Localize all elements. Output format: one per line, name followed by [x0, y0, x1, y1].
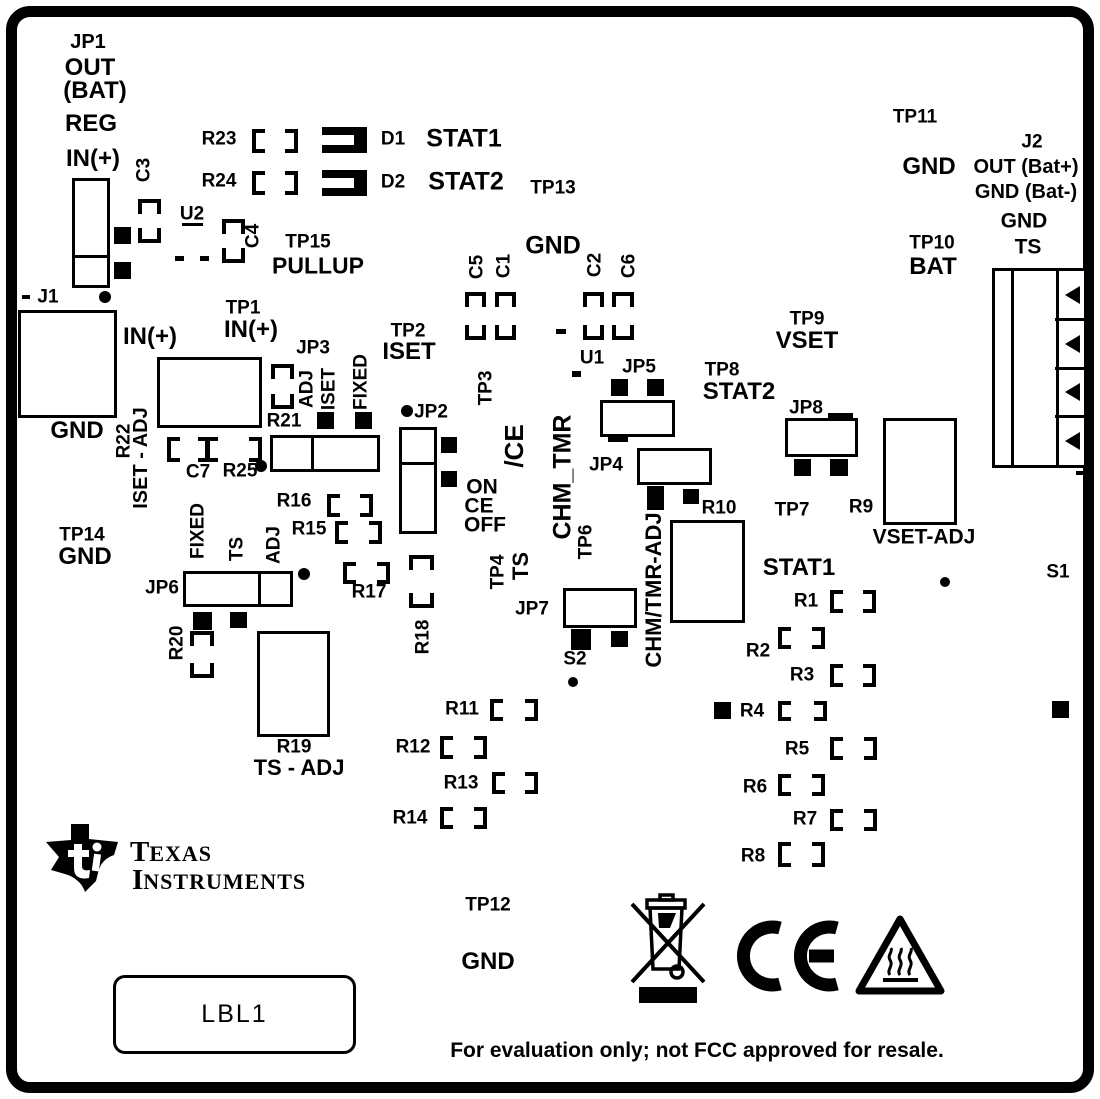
r23-pads-bracket-left: [252, 129, 265, 153]
ti-logo-icon: [44, 822, 120, 894]
j2-cell-divider: [1055, 415, 1085, 418]
r24-pads: [252, 171, 298, 195]
j2-pin-arrow-icon: [1065, 432, 1080, 450]
label-tp1: TP1: [226, 299, 261, 318]
r17-pads: [343, 562, 390, 584]
j2-strip-line: [1011, 270, 1014, 466]
r2-pads-bracket-left: [778, 627, 791, 649]
jp7: [563, 588, 637, 628]
label-jp8: JP8: [789, 399, 823, 418]
hot-surface-icon: [854, 912, 946, 998]
c3-pads-bracket-top: [138, 199, 161, 214]
r12-pads: [440, 736, 487, 759]
j2-pin-arrow-icon: [1065, 286, 1080, 304]
label-r6: R6: [743, 778, 767, 797]
label-tp10: TP10: [909, 234, 954, 253]
r15-pads-bracket-right: [369, 521, 382, 544]
c2-pads: [583, 292, 604, 340]
r11-pads: [490, 699, 538, 721]
label-jp5: JP5: [622, 358, 656, 377]
jp5: [600, 400, 675, 437]
c4-pads-bracket-bottom: [222, 248, 245, 263]
label-j2: J2: [1021, 133, 1042, 152]
r18-pads-bracket-bottom: [409, 593, 434, 608]
c5-pads-bracket-top: [465, 292, 486, 307]
r14-pads-bracket-right: [474, 807, 487, 829]
label-u2: U2: [180, 205, 204, 224]
jp1-pad: [114, 262, 131, 279]
label-tp3: TP3: [477, 371, 496, 406]
label-r1: R1: [794, 592, 818, 611]
label-d1: D1: [381, 130, 405, 149]
label-r25: R25: [223, 462, 258, 481]
silk-mark: [608, 437, 628, 442]
c7-pads: [167, 437, 262, 462]
r1-pads: [830, 590, 876, 613]
label-tp4: TP4: [489, 555, 508, 590]
r1-pads-bracket-left: [830, 590, 843, 613]
label-r9: R9: [849, 498, 873, 517]
label-stat1: STAT1: [763, 556, 835, 580]
label-r11: R11: [445, 700, 479, 719]
r15-pads-bracket-left: [335, 521, 348, 544]
j2-cell-divider: [1055, 367, 1085, 370]
silk-mark: [572, 371, 581, 377]
jp3-pad: [355, 412, 372, 429]
r16-pads: [327, 494, 373, 517]
label-gnd: GND: [50, 419, 103, 443]
r21-pads-bracket-top: [271, 364, 294, 379]
label-c2: C2: [586, 253, 605, 277]
label-ts: TS: [1015, 237, 1042, 258]
jp2-jumper-divider: [401, 462, 435, 465]
r16-pads-bracket-left: [327, 494, 340, 517]
c7-bracket-left: [167, 437, 180, 462]
r8-pads-bracket-right: [812, 842, 825, 867]
d1-led: [322, 127, 367, 153]
label-gnd: GND: [525, 234, 581, 259]
label-r21: R21: [267, 412, 302, 431]
c1-pads-bracket-bottom: [495, 325, 516, 340]
label-d2: D2: [381, 173, 405, 192]
jp5-pad: [647, 379, 664, 396]
r20-pads-bracket-top: [190, 631, 214, 646]
label-r13: R13: [444, 774, 479, 793]
label-tp15: TP15: [285, 233, 330, 252]
r4-pads: [778, 701, 827, 721]
jp1-jumper-divider: [74, 255, 108, 258]
r6-pads-bracket-right: [812, 774, 825, 796]
brand-texas: TEXAS: [130, 838, 212, 867]
c2-pads-bracket-bottom: [583, 325, 604, 340]
r2-pads-bracket-right: [812, 627, 825, 649]
label-c7: C7: [186, 463, 210, 482]
r24-pads-bracket-left: [252, 171, 265, 195]
label-r8: R8: [741, 847, 765, 866]
silk-mark: [1076, 471, 1087, 475]
c5-pads: [465, 292, 486, 340]
weee-icon: [630, 892, 708, 1004]
r15-pads: [335, 521, 382, 544]
r17-pads-bracket-right: [377, 562, 390, 584]
label-r14: R14: [393, 809, 428, 828]
silk-mark: [200, 256, 209, 261]
r23-pads-bracket-right: [285, 129, 298, 153]
r5-pads-bracket-left: [830, 737, 843, 760]
j2-connector: [992, 268, 1087, 468]
label-vset-adj: VSET-ADJ: [873, 527, 976, 548]
r23-pads: [252, 129, 298, 153]
c4-pads: [222, 219, 245, 263]
label-bat: BAT: [909, 255, 957, 279]
jp5-pad: [611, 379, 628, 396]
r12-pads-bracket-left: [440, 736, 453, 759]
label-stat2: STAT2: [703, 380, 775, 404]
label-gnd: GND: [461, 950, 514, 974]
jp4-pad: [683, 489, 699, 504]
r4-pads-bracket-left: [778, 701, 791, 721]
fiducial-dot: [99, 291, 111, 303]
r7-pads: [830, 809, 877, 831]
label-jp1: JP1: [70, 32, 106, 52]
jp2-pad: [441, 437, 457, 453]
label-iset: ISET: [382, 340, 435, 364]
label-iset: ISET: [320, 368, 339, 410]
jp1-pad: [114, 227, 131, 244]
fiducial-dot: [401, 405, 413, 417]
label-in-+: IN(+): [66, 147, 120, 171]
label-tp8: TP8: [705, 361, 740, 380]
jp3-jumper-divider: [311, 437, 314, 470]
jp7-pad: [571, 629, 591, 650]
label-r5: R5: [785, 740, 809, 759]
label-ts-adj: TS - ADJ: [254, 757, 345, 779]
label-plate-text: LBL1: [201, 1000, 267, 1029]
r20-pads: [190, 631, 214, 678]
label-chm-tmr-adj: CHM/TMR-ADJ: [643, 512, 665, 667]
jp6-jumper: [183, 571, 293, 607]
label-tp12: TP12: [465, 896, 510, 915]
r21-pads-bracket-bottom: [271, 394, 294, 409]
r18-pads-bracket-top: [409, 555, 434, 570]
r21-pads: [271, 364, 294, 409]
r17-pads-bracket-left: [343, 562, 356, 584]
label-jp7: JP7: [515, 600, 549, 619]
label-c5: C5: [468, 255, 487, 279]
label-chm-tmr: CHM_TMR: [551, 415, 576, 540]
label-reg: REG: [65, 112, 117, 136]
label-r23: R23: [202, 130, 237, 149]
r4-pad: [714, 702, 731, 719]
c1-pads-bracket-top: [495, 292, 516, 307]
label-r7: R7: [793, 810, 817, 829]
r2-pads: [778, 627, 825, 649]
r10-pot: [670, 520, 745, 623]
silk-mark: [556, 329, 566, 334]
r13-pads-bracket-right: [525, 772, 538, 794]
silk-mark: [22, 295, 30, 299]
c5-pads-bracket-bottom: [465, 325, 486, 340]
r24-pads-bracket-right: [285, 171, 298, 195]
brand-instruments: INSTRUMENTS: [132, 866, 306, 895]
label-r2: R2: [746, 642, 770, 661]
r20-pads-bracket-bottom: [190, 663, 214, 678]
label-plate-lbl1: LBL1: [113, 975, 356, 1054]
jp8: [785, 418, 858, 457]
c3-pads: [138, 199, 161, 243]
label-s2: S2: [563, 650, 586, 669]
label-r10: R10: [702, 499, 737, 518]
jp6-pad: [193, 612, 212, 630]
label-c1: C1: [495, 254, 514, 278]
silk-mark: [828, 413, 853, 418]
label-jp4: JP4: [589, 456, 623, 475]
j2-pin-arrow-icon: [1065, 335, 1080, 353]
jp2-jumper: [399, 427, 437, 534]
label-in-+: IN(+): [224, 318, 278, 342]
r19-pot: [257, 631, 330, 737]
label-adj: ADJ: [265, 526, 284, 564]
jp4: [637, 448, 712, 485]
j1-connector: [18, 310, 117, 418]
label-off: OFF: [464, 515, 506, 536]
jp6-pad: [230, 612, 247, 628]
label-j1: J1: [37, 288, 58, 307]
fiducial-dot: [568, 677, 578, 687]
label-tp6: TP6: [577, 525, 596, 560]
r14-pads-bracket-left: [440, 807, 453, 829]
label-vset: VSET: [776, 329, 839, 353]
pcb-silkscreen-board: TEXAS INSTRUMENTS LBL1: [0, 0, 1100, 1099]
jp1-jumper: [72, 178, 110, 288]
jp6-jumper-divider: [258, 573, 261, 605]
label-gnd-bat: GND (Bat-): [975, 182, 1077, 202]
r7-pads-bracket-right: [864, 809, 877, 831]
label-adj: ADJ: [298, 370, 317, 408]
c6-pads: [612, 292, 634, 340]
label-bat: (BAT): [63, 79, 127, 103]
label-r19: R19: [277, 738, 312, 757]
r18-pads: [409, 555, 434, 608]
r7-pads-bracket-left: [830, 809, 843, 831]
label-gnd: GND: [902, 155, 955, 179]
r8-pads-bracket-left: [778, 842, 791, 867]
label-c4: C4: [244, 224, 263, 248]
label-gnd: GND: [58, 545, 111, 569]
r11-pads-bracket-left: [490, 699, 503, 721]
r5-pads: [830, 737, 877, 760]
label-stat2: STAT2: [428, 170, 503, 195]
jp2-pad: [441, 471, 457, 487]
label-jp6: JP6: [145, 579, 179, 598]
c2-pads-bracket-top: [583, 292, 604, 307]
label-r17: R17: [352, 583, 387, 602]
jp4-pad: [647, 486, 664, 510]
ce-mark-icon: [733, 920, 845, 992]
r3-pads-bracket-left: [830, 664, 843, 687]
label-pullup: PULLUP: [272, 255, 364, 278]
label-tp14: TP14: [59, 526, 104, 545]
fiducial-dot: [940, 577, 950, 587]
label-out-bat+: OUT (Bat+): [974, 157, 1079, 177]
label-r3: R3: [790, 666, 814, 685]
r11-pads-bracket-right: [525, 699, 538, 721]
r13-pads-bracket-left: [492, 772, 505, 794]
evaluation-note: For evaluation only; not FCC approved fo…: [450, 1039, 944, 1063]
label-r18: R18: [414, 620, 433, 655]
label-s1: S1: [1046, 563, 1069, 582]
jp8-pad: [794, 459, 811, 476]
label-jp2: JP2: [414, 403, 448, 422]
r9-pot: [883, 418, 957, 525]
r14-pads: [440, 807, 487, 829]
r22-pot: [157, 357, 262, 428]
s1-pad: [1052, 701, 1069, 718]
c6-pads-bracket-bottom: [612, 325, 634, 340]
label-r4: R4: [740, 702, 764, 721]
label-tp13: TP13: [530, 179, 575, 198]
label-r20: R20: [168, 626, 187, 661]
c6-pads-bracket-top: [612, 292, 634, 307]
c7-bracket-right: [249, 437, 262, 462]
j2-pin-arrow-icon: [1065, 383, 1080, 401]
label-ce: /CE: [501, 424, 527, 467]
label-tp11: TP11: [893, 108, 937, 127]
label-ts: TS: [228, 537, 247, 561]
label-ts: TS: [510, 552, 532, 580]
label-u1: U1: [580, 349, 604, 368]
silk-mark: [182, 223, 203, 226]
j2-cell-divider: [1055, 318, 1085, 321]
r3-pads: [830, 664, 876, 687]
label-iset-adj: ISET - ADJ: [131, 407, 151, 509]
d2-led: [322, 170, 367, 196]
jp7-pad: [611, 631, 628, 647]
c7-ibeam-bottom: [198, 458, 218, 462]
jp3-jumper: [270, 435, 380, 472]
label-tp9: TP9: [790, 310, 825, 329]
r12-pads-bracket-right: [474, 736, 487, 759]
label-r24: R24: [202, 172, 237, 191]
silk-mark: [175, 256, 184, 261]
r16-pads-bracket-right: [360, 494, 373, 517]
label-c6: C6: [620, 254, 639, 278]
label-gnd: GND: [1001, 211, 1048, 232]
c3-pads-bracket-bottom: [138, 228, 161, 243]
label-tp7: TP7: [775, 501, 810, 520]
fiducial-dot: [298, 568, 310, 580]
jp8-pad: [830, 459, 848, 476]
label-jp3: JP3: [296, 339, 330, 358]
r5-pads-bracket-right: [864, 737, 877, 760]
label-fixed: FIXED: [352, 354, 371, 410]
c4-pads-bracket-top: [222, 219, 245, 234]
r8-pads: [778, 842, 825, 867]
label-r12: R12: [396, 738, 431, 757]
r4-pads-bracket-right: [814, 701, 827, 721]
label-r15: R15: [292, 520, 327, 539]
r6-pads: [778, 774, 825, 796]
c1-pads: [495, 292, 516, 340]
jp3-pad: [317, 412, 334, 429]
label-stat1: STAT1: [426, 127, 501, 152]
label-in-+: IN(+): [123, 325, 177, 349]
label-r16: R16: [277, 492, 312, 511]
label-fixed: FIXED: [189, 503, 208, 559]
r3-pads-bracket-right: [863, 664, 876, 687]
label-c3: C3: [135, 158, 154, 182]
r6-pads-bracket-left: [778, 774, 791, 796]
r1-pads-bracket-right: [863, 590, 876, 613]
r13-pads: [492, 772, 538, 794]
